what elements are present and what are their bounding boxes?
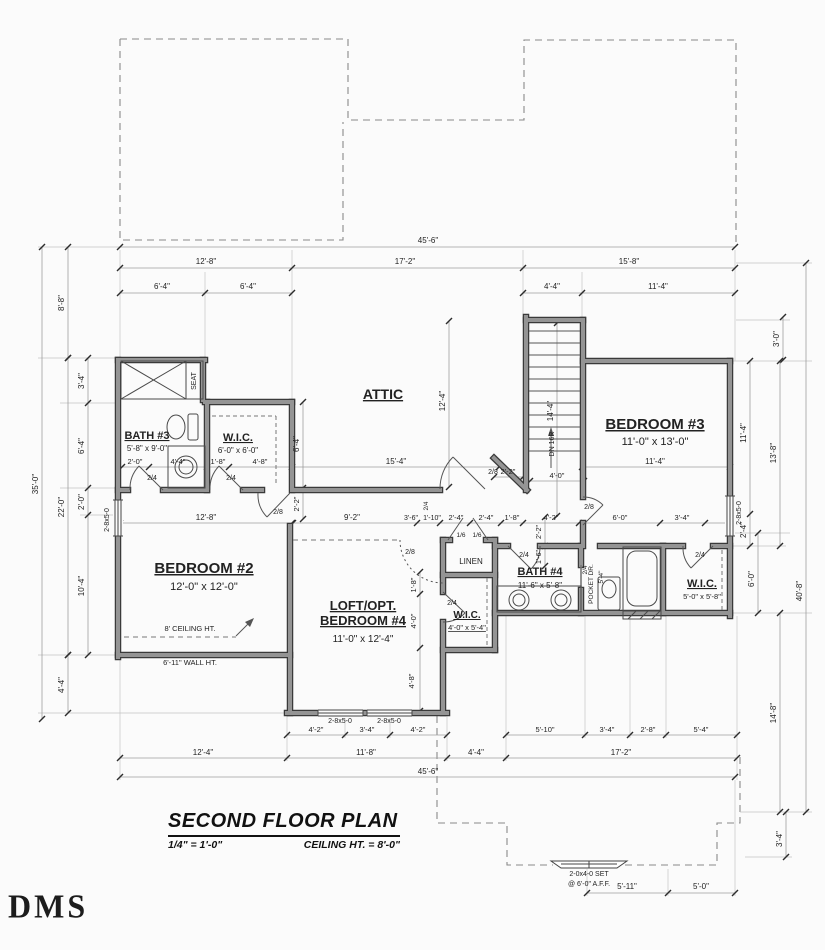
door-label: 2/4	[147, 475, 157, 482]
door-label: 1/6	[456, 532, 465, 539]
dim: 3'-4"	[360, 725, 375, 734]
room-label-wic2: W.I.C.	[687, 578, 717, 590]
designer-logo: DMS	[8, 887, 88, 926]
dim: 2'-4"	[449, 513, 464, 522]
dim: 5'-10"	[535, 725, 554, 734]
dim: 2'-0"	[128, 457, 143, 466]
room-size-bedroom2: 12'-0" x 12'-0"	[170, 581, 238, 593]
dim: 35'-0"	[31, 474, 40, 495]
dim: 6'-4"	[240, 282, 256, 291]
dim: 3'-0"	[772, 331, 781, 347]
window-label: 2-8x5-0	[328, 718, 352, 725]
note-stair-dn: DN 16R	[549, 432, 556, 457]
plan-scale: 1/4" = 1'-0"	[168, 839, 222, 851]
door-attic	[440, 457, 485, 489]
dim: 5'-0"	[693, 882, 709, 891]
dim: 4'-4"	[57, 677, 66, 693]
dim: 3'-6"	[404, 515, 418, 522]
dim: 40'-8"	[795, 581, 804, 602]
dim: 15'-4"	[386, 457, 407, 466]
ceiling-slope-arrow	[236, 618, 254, 636]
dim: 9'-2"	[344, 513, 360, 522]
dim: 11'-4"	[739, 423, 748, 443]
note-pocket-door: POCKET DR.	[588, 564, 595, 604]
room-size-wic1: 6'-0" x 6'-0"	[218, 446, 258, 455]
door-label: 2/8	[273, 509, 283, 516]
room-label-linen: LINEN	[459, 557, 483, 566]
dim: 1'-8"	[211, 457, 226, 466]
dim: 5'-4"	[694, 725, 709, 734]
dim: 5'-11"	[617, 882, 637, 891]
room-size-wic2: 5'-0" x 5'-8"	[683, 592, 721, 601]
door-label: 2/8	[584, 504, 594, 511]
dim: 1'-8"	[409, 577, 418, 592]
room-label-bedroom2: BEDROOM #2	[154, 560, 253, 577]
window-label: 2-8x5-0	[736, 501, 743, 525]
dim: 11'-4"	[648, 282, 668, 291]
door-label: 2/8	[405, 549, 415, 556]
room-label-wic1: W.I.C.	[223, 432, 253, 444]
dim: 14'-8"	[769, 703, 778, 724]
dim: 1'-10"	[423, 515, 441, 522]
dim: 8'-8"	[57, 295, 66, 311]
dim: 4'-2"	[309, 725, 324, 734]
dim: 10'-4"	[77, 576, 86, 597]
dim: 6'-4"	[292, 436, 301, 452]
dim: 12'-4"	[438, 391, 447, 412]
door-label: 2/4	[519, 552, 529, 559]
dim: 2'-2"	[501, 467, 516, 476]
window-label: 2-8x5-0	[377, 718, 401, 725]
room-label-attic: ATTIC	[363, 386, 403, 402]
dim: 17'-2"	[395, 257, 416, 266]
dim: 2'-4"	[739, 522, 748, 538]
door-label: 2/4	[447, 600, 457, 607]
room-label-bath4: BATH #4	[517, 566, 563, 578]
toilet-bath3	[167, 414, 198, 440]
room-label-loft-line2: BEDROOM #4	[320, 613, 407, 628]
dim: 22'-0"	[57, 497, 66, 518]
dim: 6'-0"	[613, 513, 628, 522]
dim: 2'-0"	[77, 494, 86, 510]
room-size-bedroom3: 11'-0" x 13'-0"	[622, 436, 689, 448]
room-size-bath4: 11'-6" x 5'-8"	[518, 581, 562, 590]
bathtub	[623, 547, 661, 619]
dim: 2'-4"	[479, 513, 494, 522]
dim: 11'-4"	[645, 457, 665, 466]
door-label: 2/4	[423, 501, 430, 510]
door-label: 2/4	[582, 565, 589, 574]
room-label-bedroom3: BEDROOM #3	[605, 416, 704, 433]
note-ceiling-ht: 8' CEILING HT.	[164, 624, 215, 633]
window-label-aff: @ 6'-0" A.F.F.	[568, 881, 610, 888]
dim: 4'-4"	[171, 457, 186, 466]
room-label-loft-line1: LOFT/OPT.	[330, 598, 396, 613]
door-label: 2/4	[695, 552, 705, 559]
title-block: SECOND FLOOR PLAN 1/4" = 1'-0" CEILING H…	[168, 810, 400, 851]
dim: 14'-4"	[546, 401, 555, 422]
dim: 1'-8"	[505, 513, 520, 522]
door-label: 2/8	[488, 469, 498, 476]
dim: 6'-4"	[77, 438, 86, 454]
dim: 3'-4"	[600, 725, 615, 734]
dim: 13'-8"	[769, 443, 778, 464]
floor-plan-page: ATTICBATH #35'-8" x 9'-0"W.I.C.6'-0" x 6…	[0, 0, 825, 950]
note-wall-ht: 6'-11" WALL HT.	[163, 658, 217, 667]
dim: 4'-4"	[544, 282, 560, 291]
window-label: 2-8x5-0	[104, 508, 111, 532]
note-seat: SEAT	[191, 371, 198, 389]
dim: 4'-2"	[544, 513, 559, 522]
dim: 4'-2"	[411, 725, 426, 734]
dim: 4'-4"	[468, 748, 484, 757]
window-label-set: 2-0x4-0 SET	[569, 871, 609, 878]
dim: 1'-6"	[536, 550, 543, 564]
floor-plan-drawing: ATTICBATH #35'-8" x 9'-0"W.I.C.6'-0" x 6…	[0, 0, 825, 950]
room-size-loft: 11'-0" x 12'-4"	[333, 634, 394, 645]
dim: 2'-2"	[292, 496, 301, 511]
dim: 4'-0"	[550, 471, 565, 480]
door-loft-optional	[400, 540, 443, 583]
door-label: 1/6	[472, 532, 481, 539]
dim: 12'-8"	[196, 513, 217, 522]
dim: 11'-8"	[356, 748, 376, 757]
dim: 3'-4"	[675, 513, 690, 522]
room-size-bath3: 5'-8" x 9'-0"	[127, 444, 167, 453]
door-label: 2/4	[226, 475, 236, 482]
room-size-wic3: 4'-0" x 5'-4"	[448, 623, 486, 632]
dim: 3'-4"	[775, 831, 784, 847]
dim: 3'-4"	[77, 373, 86, 389]
dim: 15'-8"	[619, 257, 640, 266]
dim: 4'-8"	[407, 673, 416, 688]
dim: 4'-0"	[409, 613, 418, 628]
dim: 12'-4"	[193, 748, 214, 757]
dim: 2'-8"	[641, 725, 656, 734]
door-swings	[130, 457, 713, 622]
dim: 12'-8"	[196, 257, 217, 266]
dim: 45'-6"	[418, 767, 439, 776]
dim: 17'-2"	[611, 748, 632, 757]
dim: 6'-0"	[747, 571, 756, 587]
room-label-bath3: BATH #3	[124, 430, 169, 442]
dim: 4'-8"	[253, 457, 268, 466]
roof-outline	[120, 39, 740, 865]
ceiling-note: CEILING HT. = 8'-0"	[304, 839, 400, 851]
room-label-wic3: W.I.C.	[453, 610, 480, 621]
plan-title: SECOND FLOOR PLAN	[168, 810, 400, 837]
dim: 45'-6"	[418, 236, 439, 245]
dim: 2'-2"	[536, 525, 543, 539]
dim: 6'-4"	[154, 282, 170, 291]
note-pocket-size: 5'-4"	[598, 570, 605, 584]
